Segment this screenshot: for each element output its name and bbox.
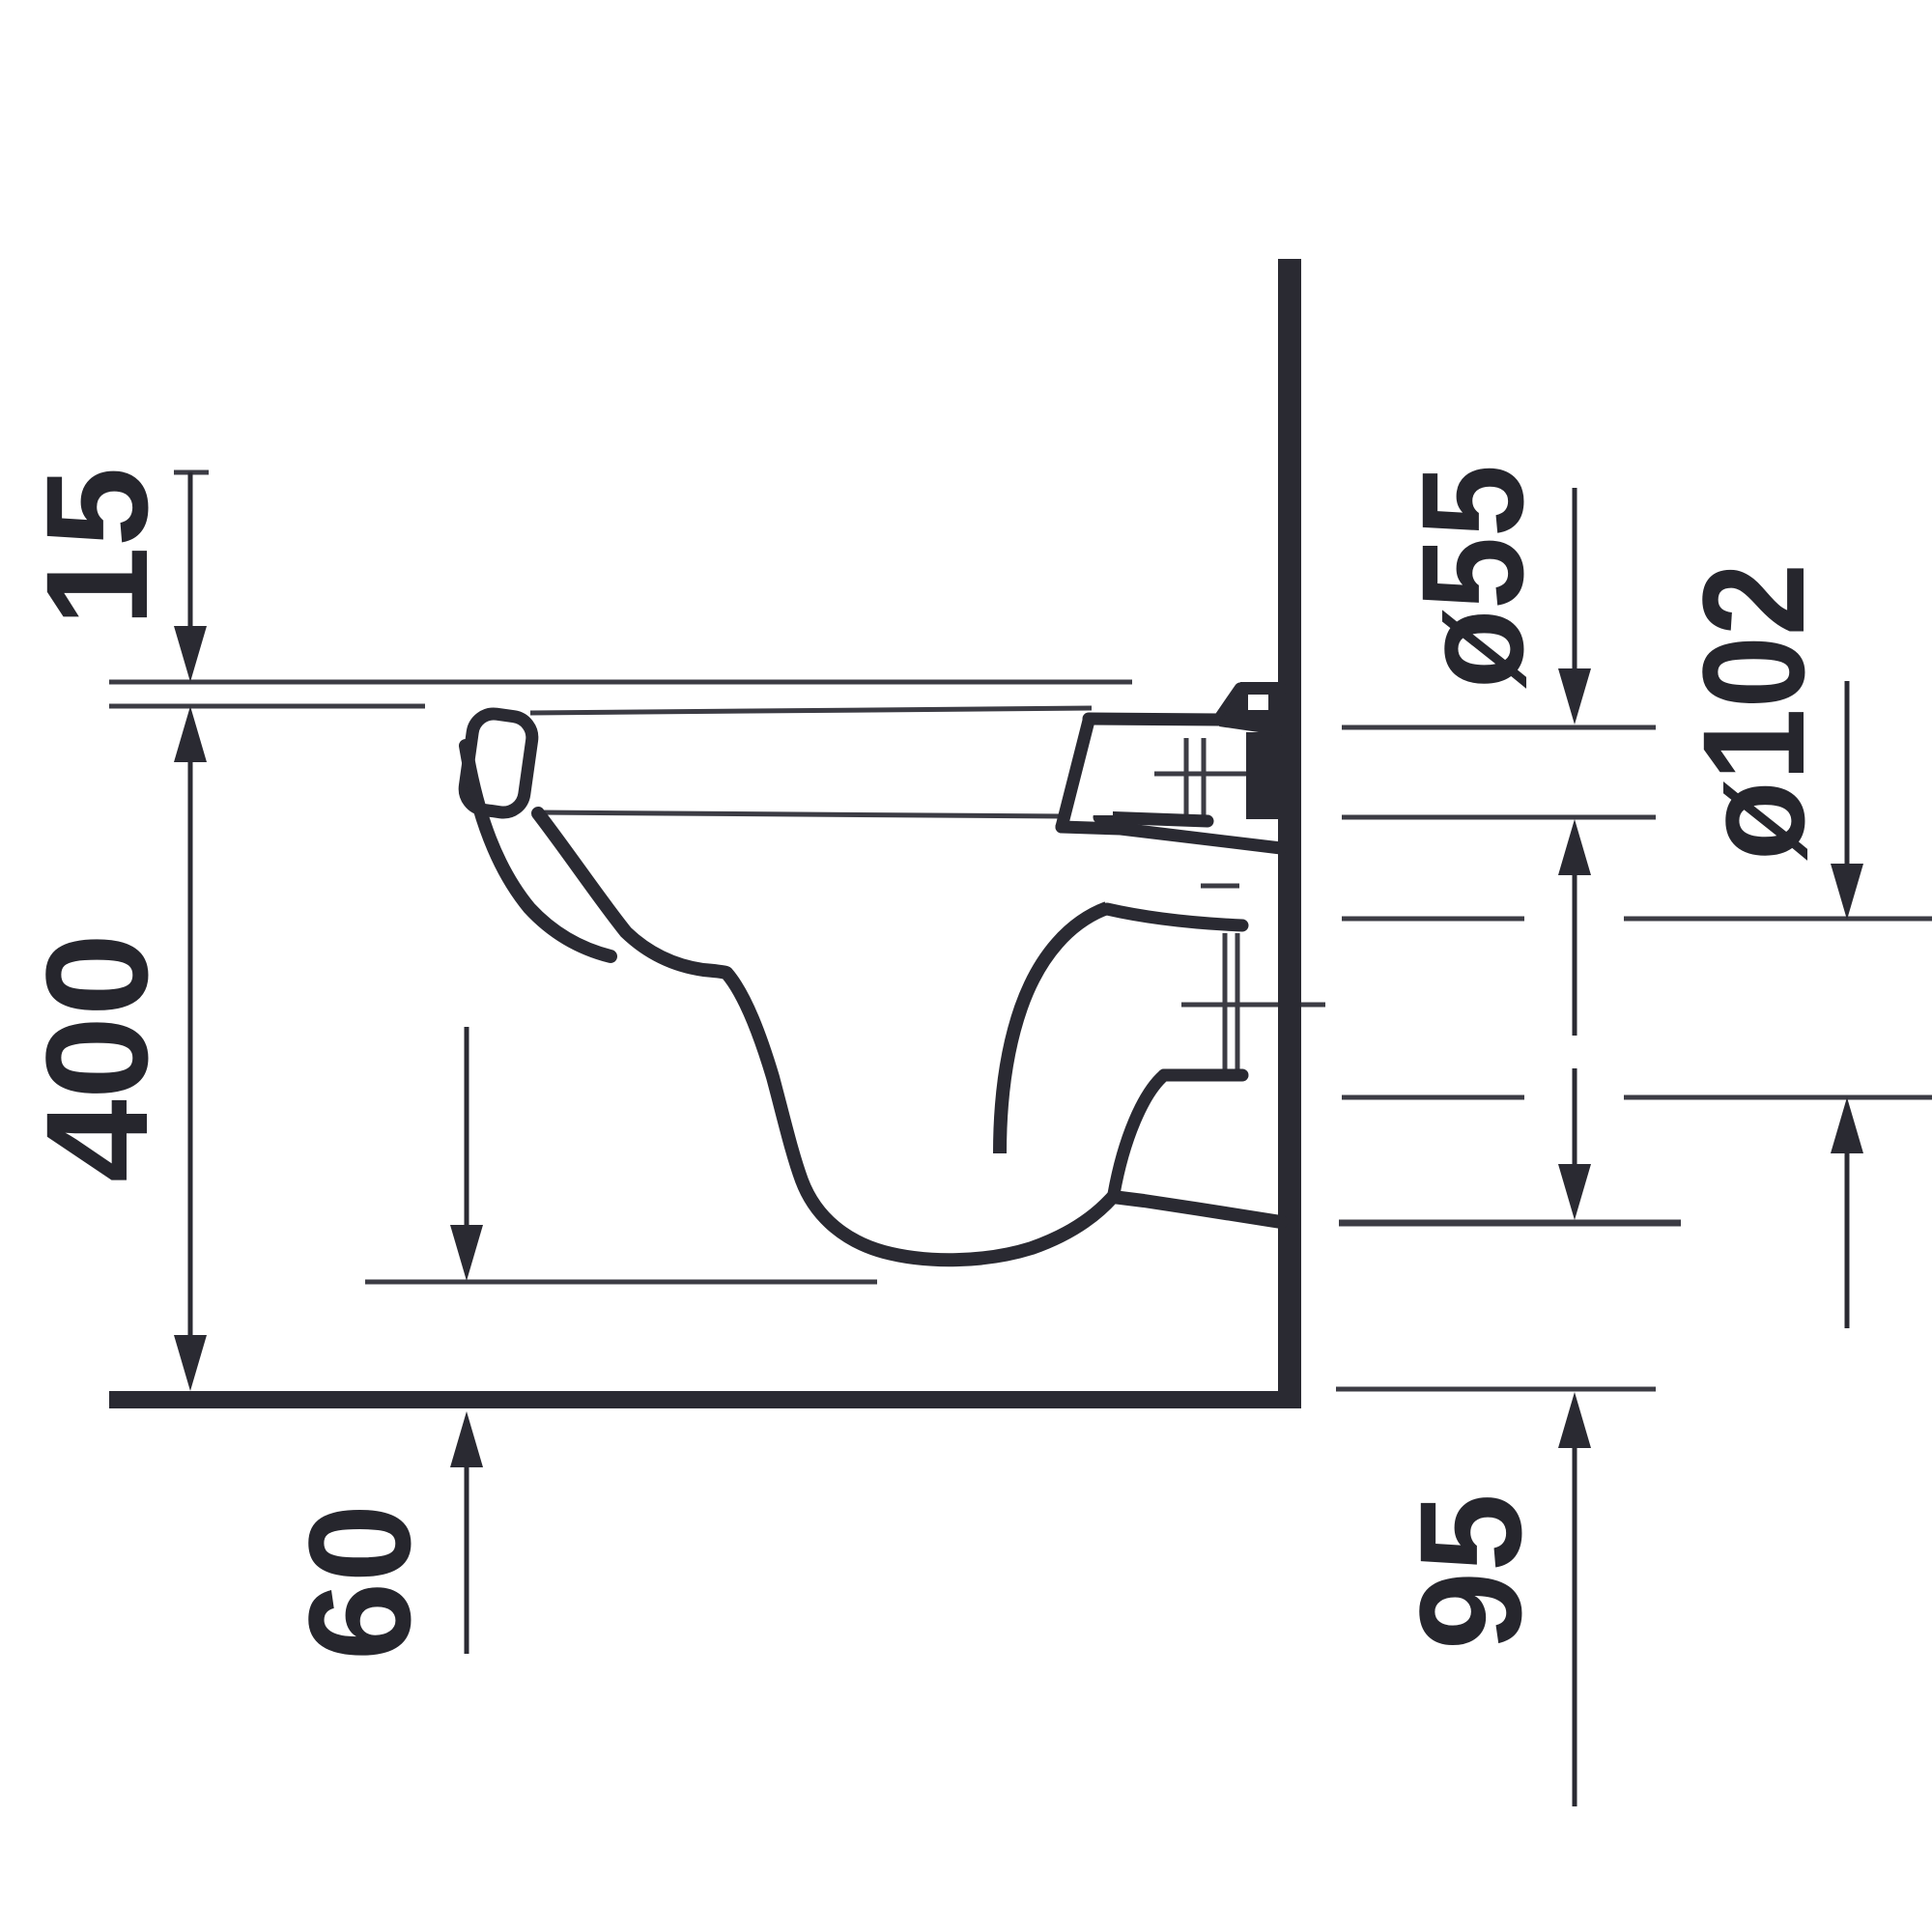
arrow-up-icon (1558, 1392, 1591, 1448)
technical-drawing-canvas: 15 400 60 ø55 95 ø102 (0, 0, 1932, 1932)
back-face-white-notch (1088, 796, 1113, 815)
dim-label-dia55: ø55 (1391, 465, 1553, 689)
dimension-15-and-400 (174, 472, 207, 1391)
flush-pipe-wall-block (1246, 732, 1281, 819)
arrow-up-icon (174, 706, 207, 762)
arrow-up-icon (1831, 1097, 1863, 1153)
rim-top-line (530, 708, 1092, 713)
flush-pipe-bottom-edge (1099, 817, 1207, 821)
arrow-down-icon (1558, 668, 1591, 724)
back-ceramic-face (1062, 721, 1089, 827)
arrow-down-icon (450, 1225, 483, 1281)
rim-underside-line (539, 812, 1063, 816)
arrow-up-icon (1558, 819, 1591, 875)
dim-label-95: 95 (1389, 1493, 1551, 1650)
dimension-dia102 (1831, 681, 1863, 1328)
arrow-down-icon (1831, 864, 1863, 920)
dim-label-60: 60 (278, 1504, 440, 1661)
dim-label-15: 15 (15, 468, 178, 627)
bowl-outer-front-curve (466, 746, 611, 956)
floor-line (109, 1391, 1301, 1408)
outlet-lower-step (1114, 1075, 1164, 1194)
dim-label-dia102: ø102 (1672, 563, 1834, 861)
arrow-down-icon (174, 626, 207, 682)
dimension-dia55-and-95 (1558, 488, 1591, 1806)
trap-inner-curve (1000, 908, 1107, 1153)
arrow-up-icon (450, 1411, 483, 1467)
dim-label-400: 400 (15, 933, 178, 1182)
arrow-down-icon (174, 1335, 207, 1391)
dimension-60 (450, 1027, 483, 1654)
bowl-inner-and-bottom-curve (538, 813, 1281, 1260)
lower-back-top-edge (1062, 827, 1281, 848)
wall-section-line (1278, 259, 1301, 1408)
toilet-dimension-drawing: 15 400 60 ø55 95 ø102 (0, 0, 1932, 1932)
outlet-top-edge (1107, 909, 1242, 925)
hump-white-notch (1248, 695, 1268, 710)
arrow-down-icon (1558, 1164, 1591, 1220)
